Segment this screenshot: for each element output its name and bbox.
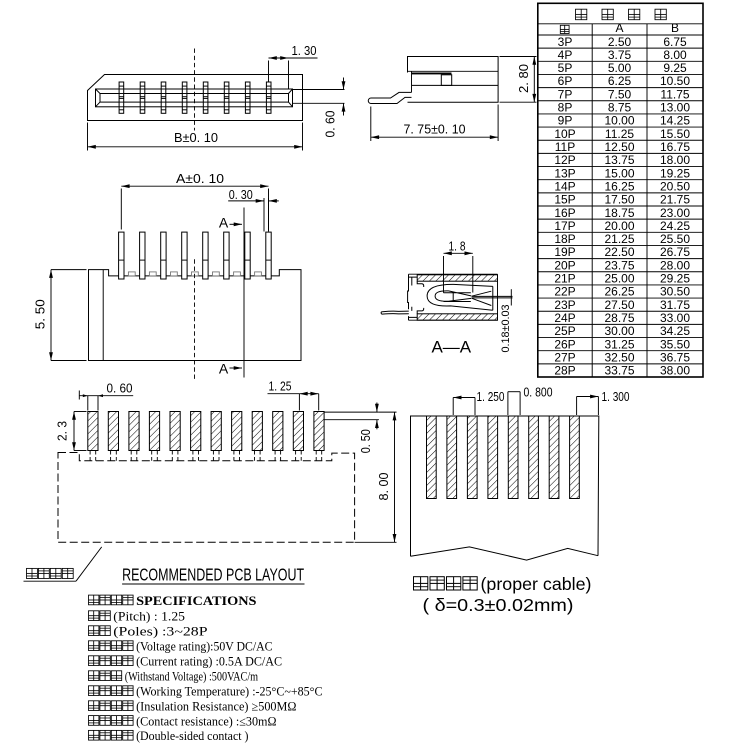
svg-text:16.75: 16.75	[660, 140, 690, 154]
svg-text:10P: 10P	[554, 127, 575, 141]
svg-text:2. 80: 2. 80	[517, 64, 531, 93]
svg-text:RECOMMENDED PCB LAYOUT: RECOMMENDED PCB LAYOUT	[122, 565, 304, 585]
svg-text:6.25: 6.25	[608, 74, 632, 88]
svg-text:17P: 17P	[554, 219, 575, 233]
svg-text:8.75: 8.75	[608, 101, 632, 115]
svg-text:(Double-sided contact ): (Double-sided contact )	[136, 729, 248, 743]
svg-text:30.00: 30.00	[604, 324, 634, 338]
svg-text:35.50: 35.50	[660, 337, 690, 351]
svg-text:1. 25: 1. 25	[269, 380, 292, 394]
svg-text:36.75: 36.75	[660, 351, 690, 365]
svg-text:(Poles) :3~28P: (Poles) :3~28P	[113, 625, 207, 639]
svg-text:27.50: 27.50	[604, 298, 634, 312]
svg-text:8.00: 8.00	[663, 48, 687, 62]
svg-text:(Voltage rating):50V DC/AC: (Voltage rating):50V DC/AC	[136, 640, 272, 654]
svg-text:A±0. 10: A±0. 10	[176, 171, 224, 186]
svg-text:7P: 7P	[558, 87, 573, 101]
svg-text:8. 00: 8. 00	[377, 472, 391, 500]
svg-text:A: A	[219, 215, 229, 231]
svg-text:13P: 13P	[554, 166, 575, 180]
svg-text:A: A	[219, 361, 229, 377]
svg-text:16.25: 16.25	[604, 180, 634, 194]
svg-text:15.00: 15.00	[604, 166, 634, 180]
svg-text:7.50: 7.50	[608, 87, 632, 101]
svg-text:19P: 19P	[554, 245, 575, 259]
svg-text:11.25: 11.25	[605, 127, 634, 141]
svg-text:11P: 11P	[555, 140, 575, 154]
svg-text:2.50: 2.50	[608, 35, 632, 49]
svg-text:(Insulation Resistance) ≥500MΩ: (Insulation Resistance) ≥500MΩ	[136, 700, 296, 714]
svg-text:12.50: 12.50	[604, 140, 634, 154]
svg-text:8P: 8P	[558, 101, 573, 115]
svg-text:24.25: 24.25	[660, 219, 690, 233]
svg-text:14P: 14P	[554, 180, 575, 194]
svg-text:18.75: 18.75	[604, 206, 634, 220]
svg-text:3P: 3P	[558, 35, 573, 49]
svg-text:32.50: 32.50	[604, 351, 634, 365]
svg-text:23.75: 23.75	[604, 258, 634, 272]
svg-text:5.00: 5.00	[608, 61, 632, 75]
svg-text:18.00: 18.00	[660, 153, 690, 167]
svg-text:23P: 23P	[554, 298, 575, 312]
svg-text:26.25: 26.25	[604, 285, 634, 299]
svg-text:2. 3: 2. 3	[55, 421, 69, 441]
svg-text:0. 800: 0. 800	[524, 386, 553, 400]
svg-text:(Working Temperature) :-25°C~+: (Working Temperature) :-25°C~+85°C	[136, 685, 322, 699]
svg-text:25.00: 25.00	[604, 272, 634, 286]
svg-text:22P: 22P	[554, 285, 575, 299]
svg-text:B: B	[671, 21, 679, 35]
svg-text:11.75: 11.75	[660, 87, 689, 101]
svg-text:14.25: 14.25	[660, 114, 690, 128]
svg-text:SPECIFICATIONS: SPECIFICATIONS	[136, 594, 257, 608]
svg-text:20.50: 20.50	[660, 180, 690, 194]
svg-text:18P: 18P	[554, 232, 575, 246]
svg-text:9P: 9P	[558, 114, 573, 128]
svg-text:13.75: 13.75	[604, 153, 634, 167]
svg-text:31.75: 31.75	[660, 298, 690, 312]
svg-text:0. 60: 0. 60	[324, 110, 338, 137]
svg-text:4P: 4P	[558, 48, 573, 62]
svg-text:1. 250: 1. 250	[477, 390, 505, 404]
svg-text:28.00: 28.00	[660, 258, 690, 272]
svg-text:20.00: 20.00	[604, 219, 634, 233]
svg-text:17.50: 17.50	[604, 193, 634, 207]
svg-text:21.25: 21.25	[604, 232, 634, 246]
svg-text:(proper cable): (proper cable)	[481, 574, 592, 594]
svg-text:21.75: 21.75	[660, 193, 690, 207]
svg-text:( δ=0.3±0.02mm): ( δ=0.3±0.02mm)	[423, 595, 574, 615]
svg-text:(Current rating) :0.5A DC/AC: (Current rating) :0.5A DC/AC	[136, 655, 282, 669]
svg-text:1. 8: 1. 8	[449, 240, 466, 254]
svg-text:9.25: 9.25	[663, 61, 687, 75]
svg-text:30.50: 30.50	[660, 285, 690, 299]
svg-text:29.25: 29.25	[660, 272, 690, 286]
svg-text:31.25: 31.25	[604, 337, 634, 351]
svg-text:28.75: 28.75	[604, 311, 634, 325]
svg-text:19.25: 19.25	[660, 166, 690, 180]
svg-text:16P: 16P	[554, 206, 575, 220]
svg-text:27P: 27P	[554, 351, 575, 365]
svg-text:(Contact resistance) :≤30mΩ: (Contact resistance) :≤30mΩ	[136, 714, 276, 728]
svg-text:21P: 21P	[554, 272, 575, 286]
svg-text:26.75: 26.75	[660, 245, 690, 259]
svg-text:7. 75±0. 10: 7. 75±0. 10	[404, 122, 466, 137]
svg-text:0.18±0.03: 0.18±0.03	[500, 305, 512, 353]
svg-text:A: A	[615, 21, 623, 35]
svg-text:38.00: 38.00	[660, 364, 690, 378]
svg-text:(Withstand Voltage) :500VAC/m: (Withstand Voltage) :500VAC/m	[125, 670, 259, 684]
svg-text:33.00: 33.00	[660, 311, 690, 325]
svg-text:5P: 5P	[558, 61, 573, 75]
svg-text:0. 50: 0. 50	[359, 429, 373, 453]
svg-text:24P: 24P	[554, 311, 575, 325]
svg-text:25P: 25P	[554, 324, 575, 338]
svg-text:6P: 6P	[558, 74, 573, 88]
svg-text:6.75: 6.75	[663, 35, 687, 49]
svg-text:A—A: A—A	[431, 338, 471, 357]
svg-text:1. 30: 1. 30	[292, 44, 317, 58]
svg-text:26P: 26P	[554, 337, 575, 351]
svg-text:15.50: 15.50	[660, 127, 690, 141]
svg-text:5. 50: 5. 50	[34, 299, 48, 329]
svg-text:25.50: 25.50	[660, 232, 690, 246]
svg-text:3.75: 3.75	[608, 48, 632, 62]
svg-text:23.00: 23.00	[660, 206, 690, 220]
svg-text:12P: 12P	[554, 153, 575, 167]
svg-text:0. 60: 0. 60	[107, 382, 133, 396]
svg-text:13.00: 13.00	[660, 101, 690, 115]
svg-text:28P: 28P	[554, 364, 575, 378]
svg-text:(Pitch) : 1.25: (Pitch) : 1.25	[113, 610, 185, 624]
svg-text:20P: 20P	[554, 258, 575, 272]
svg-text:34.25: 34.25	[660, 324, 690, 338]
svg-text:33.75: 33.75	[604, 364, 634, 378]
svg-text:15P: 15P	[554, 193, 575, 207]
svg-text:B±0. 10: B±0. 10	[174, 130, 218, 145]
svg-text:22.50: 22.50	[604, 245, 634, 259]
svg-text:1. 300: 1. 300	[602, 390, 630, 404]
svg-text:10.00: 10.00	[604, 114, 634, 128]
svg-text:0. 30: 0. 30	[229, 188, 253, 202]
svg-text:10.50: 10.50	[660, 74, 690, 88]
